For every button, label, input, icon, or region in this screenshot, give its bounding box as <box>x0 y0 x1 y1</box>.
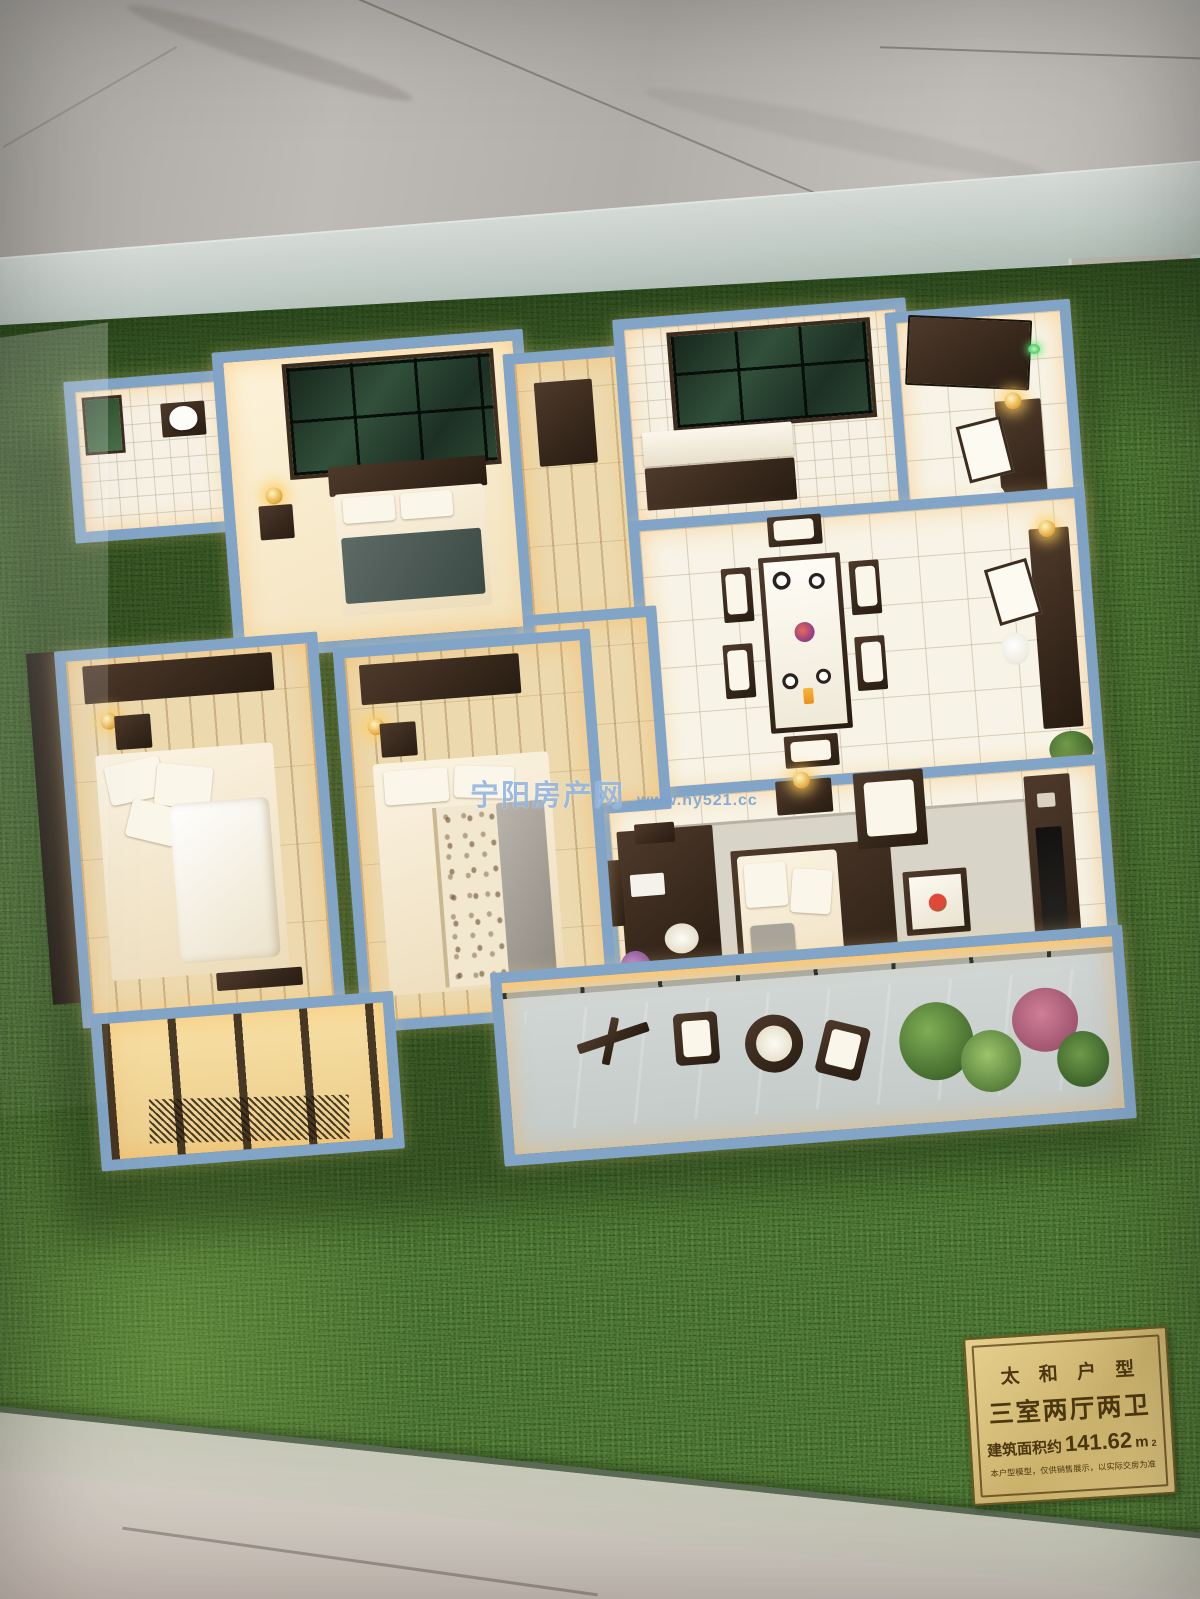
plaque-layout: 三室两厅两卫 <box>988 1385 1152 1431</box>
plaque-disclaimer: 本户型模型，仅供销售展示，以实际交房为准 <box>990 1457 1156 1479</box>
chair-cushion <box>725 573 748 614</box>
plaque-area-sup: 2 <box>1151 1437 1157 1447</box>
nightstand <box>379 721 418 758</box>
fruit-bowl <box>794 621 815 642</box>
dining-chair <box>767 513 823 547</box>
pillow <box>383 767 449 806</box>
glass-reflection <box>0 322 108 1117</box>
watermark: 宁阳房产网 www.ny521.cc <box>470 772 758 814</box>
plaque-area-unit: m <box>1135 1433 1149 1451</box>
dining-chair <box>721 567 755 623</box>
plaque-area: 建筑面积约 141.62 m2 <box>986 1425 1157 1461</box>
desk-mat <box>664 922 700 955</box>
plate <box>815 668 831 684</box>
balcony-tabletop <box>755 1024 794 1063</box>
hall-door <box>534 379 598 467</box>
dining-table <box>758 552 853 734</box>
kitchen-window <box>666 317 877 432</box>
chair-cushion <box>824 1028 862 1070</box>
marble-vein <box>123 0 416 112</box>
fruit <box>928 893 947 912</box>
plaque-title: 太 和 户 型 <box>1000 1353 1142 1389</box>
gold-lamp <box>265 487 283 505</box>
watermark-site-name: 宁阳房产网 <box>470 772 625 814</box>
bed-quilt <box>341 528 486 605</box>
plate <box>782 673 799 690</box>
entry-door <box>905 315 1032 391</box>
sideboard <box>1028 527 1083 729</box>
keyboard <box>630 873 666 898</box>
dining-tabletop <box>763 557 848 728</box>
armchair <box>853 768 929 849</box>
marble-vein <box>641 77 1058 194</box>
master-bed <box>95 742 290 981</box>
plaque-area-label: 建筑面积约 <box>986 1435 1062 1461</box>
pendant-lamp <box>1000 632 1030 666</box>
watermark-site-url: www.ny521.cc <box>637 792 758 810</box>
plate <box>772 571 791 590</box>
apartment-model <box>3 269 1200 1234</box>
decor-item <box>1037 792 1056 807</box>
dining-chair <box>722 643 756 699</box>
bedroom2-room <box>211 329 546 660</box>
chair-cushion <box>790 739 831 762</box>
coffee-tabletop <box>909 874 965 930</box>
info-plaque: 太 和 户 型 三室两厅两卫 建筑面积约 141.62 m2 本户型模型，仅供销… <box>963 1326 1177 1506</box>
armchair-cushion <box>863 779 917 837</box>
dining-chair <box>784 733 840 769</box>
tile-seam <box>880 46 1200 60</box>
juice-glass <box>803 688 814 705</box>
plate <box>808 572 825 589</box>
grille-panel <box>149 1095 350 1144</box>
dining-chair <box>854 635 888 691</box>
chair-cushion <box>681 1020 712 1058</box>
pillow <box>400 490 454 520</box>
balcony-chair <box>673 1011 721 1066</box>
nightstand <box>258 504 295 541</box>
sofa-cushion <box>790 868 833 914</box>
wardrobe <box>359 653 522 705</box>
printer <box>634 822 675 845</box>
plaque-area-value: 141.62 <box>1064 1427 1133 1457</box>
tile-seam <box>3 46 177 148</box>
chair-cushion <box>727 650 750 691</box>
dining-chair <box>848 559 882 615</box>
chair-cushion <box>855 565 878 606</box>
pillow <box>342 494 396 524</box>
wardrobe <box>82 652 274 704</box>
kitchen-cabinets <box>645 457 798 510</box>
duvet <box>169 797 281 964</box>
bed <box>334 483 493 616</box>
bay-window-balcony <box>90 991 405 1172</box>
sofa-cushion <box>743 861 788 908</box>
green-led-dot <box>1028 344 1040 354</box>
showroom-photo: 宁阳房产网 www.ny521.cc 太 和 户 型 三室两厅两卫 建筑面积约 … <box>0 0 1200 1599</box>
nightstand <box>114 714 153 751</box>
coffee-table <box>902 867 971 936</box>
chair-cushion <box>773 518 814 541</box>
chair-cushion <box>861 641 884 682</box>
